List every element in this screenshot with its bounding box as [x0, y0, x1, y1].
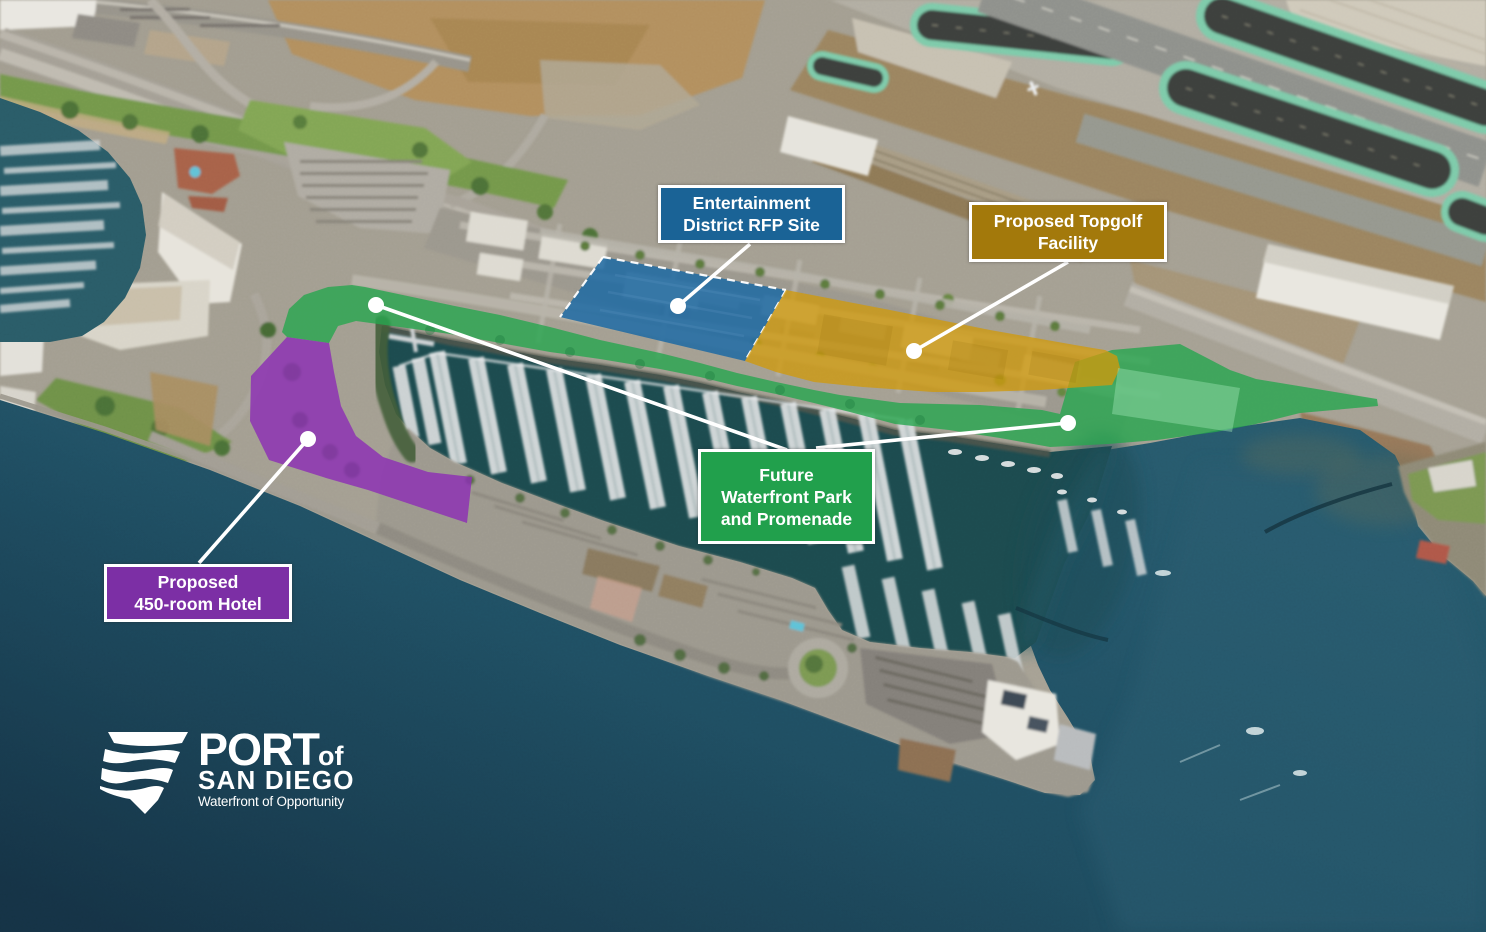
- svg-text:Waterfront of Opportunity: Waterfront of Opportunity: [198, 794, 345, 809]
- svg-text:SAN DIEGO: SAN DIEGO: [198, 765, 355, 795]
